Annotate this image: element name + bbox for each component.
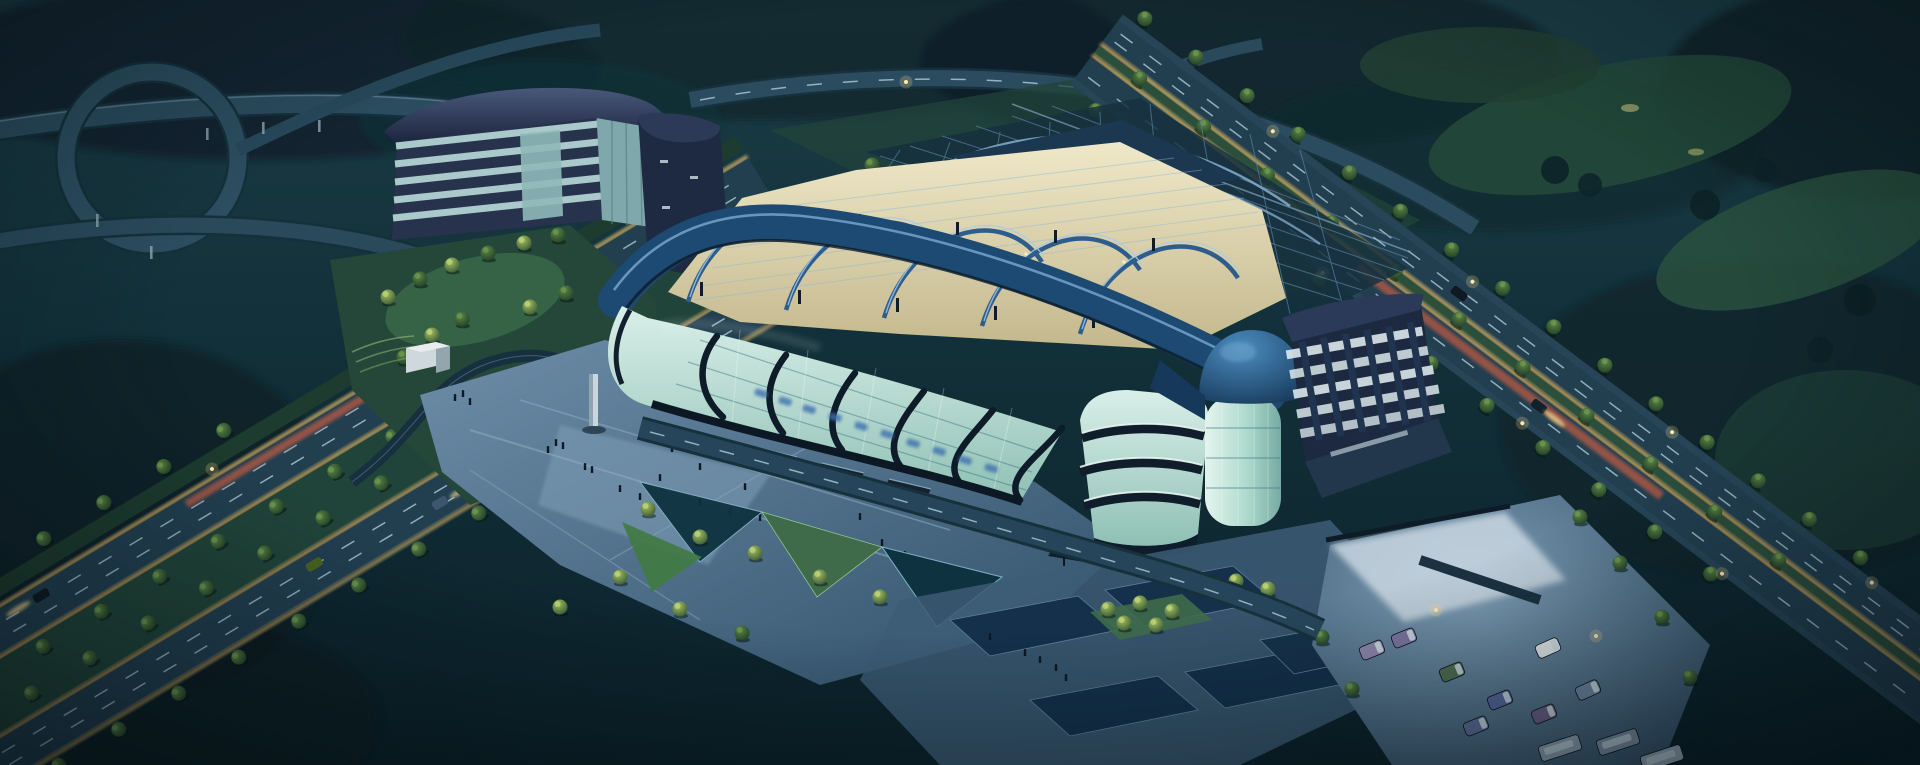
rendering-canvas: Dusk aerial 3D rendering of a large glas… xyxy=(0,0,1920,765)
vignette-overlay xyxy=(0,0,1920,765)
exhibition-center-rendering: Dusk aerial 3D rendering of a large glas… xyxy=(0,0,1920,765)
